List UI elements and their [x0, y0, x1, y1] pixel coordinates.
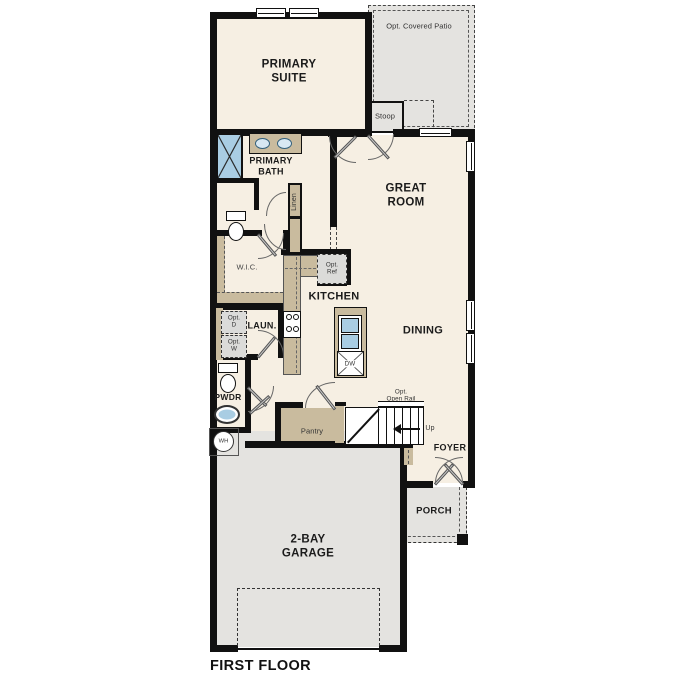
label-opt-washer: Opt. W: [228, 339, 240, 354]
floor-plan-canvas: PRIMARY SUITE Opt. Covered Patio Stoop P…: [0, 0, 687, 687]
wall-garage-bottom-right: [379, 645, 407, 652]
window-dining-right-2: [466, 333, 475, 364]
foyer-stub-dash: [408, 450, 409, 464]
label-opt-ref: Opt. Ref: [326, 262, 338, 277]
label-stoop: Stoop: [375, 113, 395, 122]
wall-suite-right: [365, 12, 372, 133]
window-greatroom-top: [419, 128, 452, 137]
garage-door-threshold: [238, 648, 379, 650]
vanity-sink-left: [255, 138, 270, 149]
foyer-wall-stub-cap: [404, 445, 413, 448]
window-greatroom-right: [466, 141, 475, 172]
pwdr-toilet-tank: [218, 363, 238, 373]
shower-x-icon: [218, 135, 241, 178]
label-wic: W.I.C.: [236, 264, 257, 273]
linen-divider: [288, 216, 302, 219]
window-glass-line: [291, 13, 317, 14]
wall-foyer-bottom-right: [463, 481, 475, 488]
window-glass-line: [421, 133, 450, 134]
label-primary-bath: PRIMARY BATH: [249, 155, 292, 176]
burner: [293, 326, 299, 332]
label-water-heater: WH: [219, 438, 229, 445]
wall-toilet-nook: [254, 178, 259, 210]
label-dishwasher: DW: [344, 360, 357, 367]
window-glass-line: [471, 302, 472, 329]
label-opt-open-rail: Opt. Open Rail: [387, 389, 416, 404]
window-suite-2: [289, 8, 319, 18]
stair-left-stub-cap: [335, 402, 346, 406]
burner: [286, 314, 292, 320]
label-patio: Opt. Covered Patio: [386, 23, 452, 32]
burner: [293, 314, 299, 320]
pwdr-sink: [214, 405, 240, 424]
porch-column: [457, 534, 468, 545]
label-up: Up: [425, 425, 434, 433]
up-arrow-head-icon: [393, 424, 401, 434]
kitchen-counter-dash-h: [285, 268, 316, 269]
label-dining: DINING: [403, 325, 443, 338]
label-porch: PORCH: [416, 505, 452, 516]
label-kitchen: KITCHEN: [309, 291, 360, 304]
vanity-sink-right: [277, 138, 292, 149]
up-arrow-line: [400, 428, 420, 430]
label-laundry: LAUN.: [248, 321, 277, 332]
shower: [216, 133, 243, 180]
label-pwdr: PWDR: [214, 392, 241, 402]
label-opt-dryer: Opt. D: [228, 315, 240, 330]
wall-garage-right: [400, 443, 407, 652]
plan-title: FIRST FLOOR: [210, 658, 311, 674]
wall-foyer-bottom-left: [403, 481, 433, 488]
window-glass-line: [258, 13, 284, 14]
label-pantry: Pantry: [301, 428, 323, 437]
label-foyer: FOYER: [434, 443, 467, 454]
wall-pantry-top: [275, 402, 303, 408]
island-sink-basin-top: [341, 318, 359, 333]
label-garage: 2-BAY GARAGE: [282, 533, 334, 560]
window-glass-line: [471, 335, 472, 362]
garage-door-dashed: [237, 588, 380, 646]
wall-garage-bottom-left: [210, 645, 238, 652]
label-primary-suite: PRIMARY SUITE: [262, 58, 317, 85]
label-great-room: GREAT ROOM: [386, 182, 427, 209]
window-suite-1: [256, 8, 286, 18]
rear-door-threshold-dots: [368, 131, 393, 133]
bath-toilet-bowl: [228, 222, 244, 241]
label-linen: Linen: [291, 193, 299, 211]
bath-toilet-tank: [226, 211, 246, 221]
window-dining-right-1: [466, 300, 475, 331]
burner: [286, 326, 292, 332]
window-glass-line: [471, 143, 472, 170]
pwdr-toilet-bowl: [220, 374, 236, 393]
range: [283, 311, 301, 338]
wic-shelf-bottom: [217, 292, 283, 303]
island-sink-basin-bottom: [341, 334, 359, 349]
stair-left-stub: [335, 404, 344, 443]
wall-pantry-left: [275, 404, 281, 448]
